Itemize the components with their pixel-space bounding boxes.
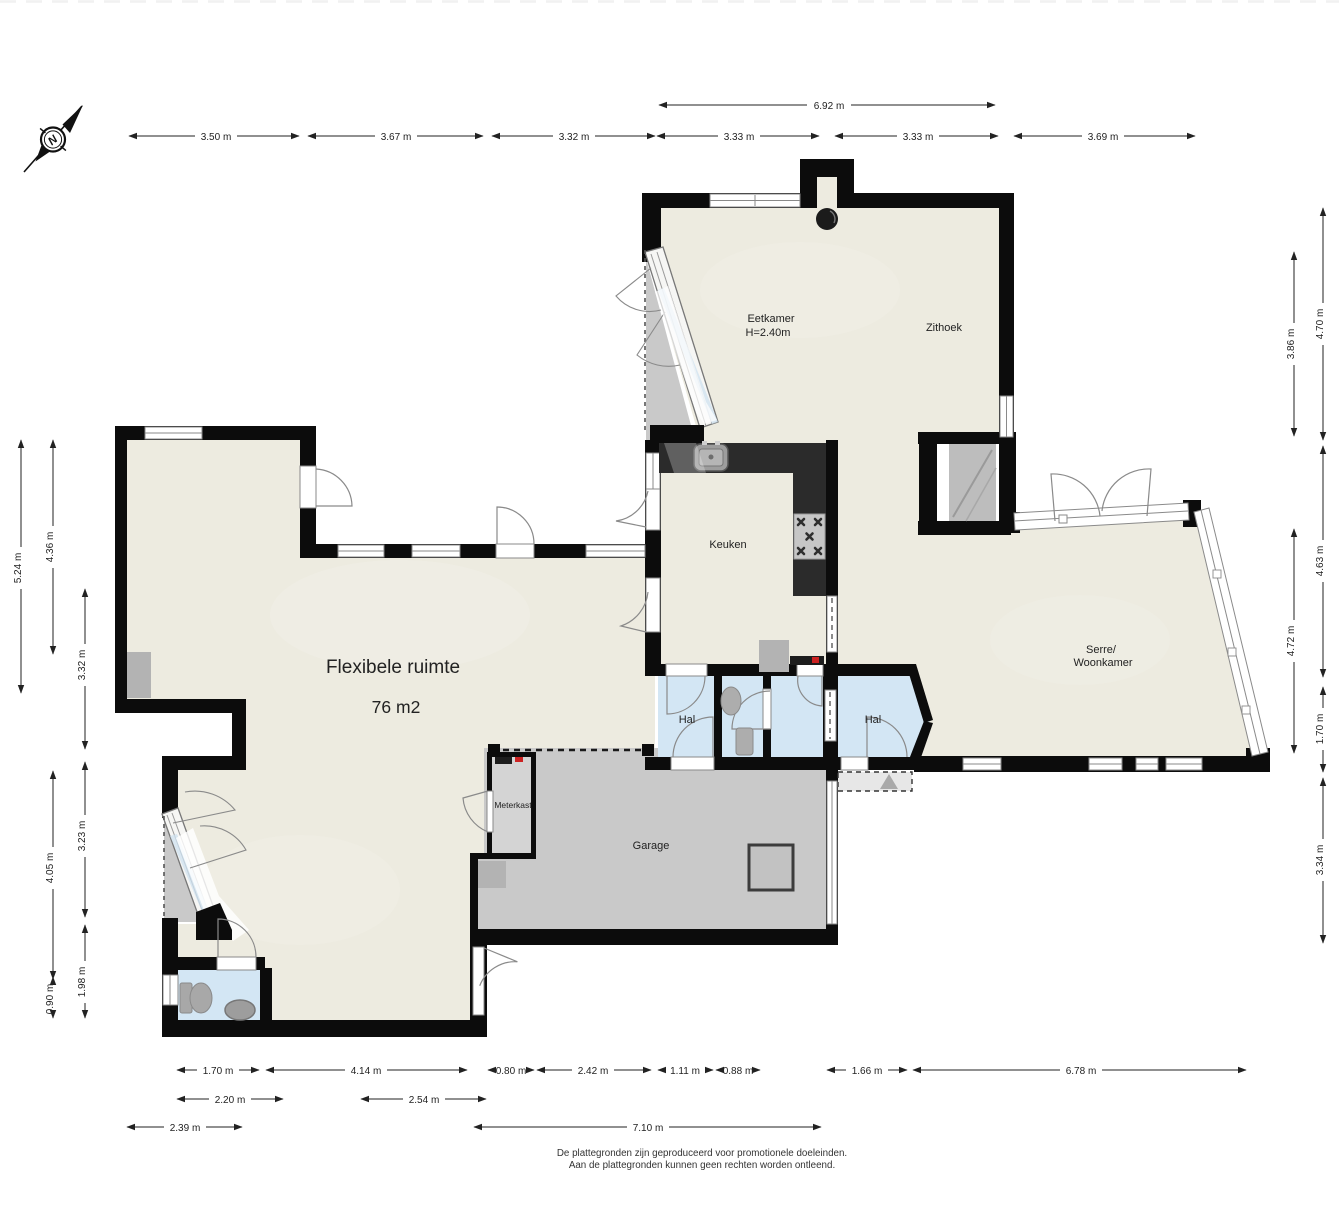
svg-text:4.70 m: 4.70 m — [1315, 309, 1326, 340]
svg-text:2.54 m: 2.54 m — [409, 1095, 440, 1106]
svg-text:4.05 m: 4.05 m — [45, 853, 56, 884]
svg-text:3.50 m: 3.50 m — [201, 132, 232, 143]
svg-text:3.69 m: 3.69 m — [1088, 132, 1119, 143]
svg-text:3.34 m: 3.34 m — [1315, 845, 1326, 876]
svg-text:2.39 m: 2.39 m — [170, 1123, 201, 1134]
svg-text:4.36 m: 4.36 m — [45, 532, 56, 563]
svg-text:3.23 m: 3.23 m — [77, 821, 88, 852]
svg-text:H=2.40m: H=2.40m — [746, 327, 791, 339]
svg-text:3.33 m: 3.33 m — [724, 132, 755, 143]
svg-text:Flexibele ruimte: Flexibele ruimte — [326, 657, 460, 678]
svg-text:76 m2: 76 m2 — [372, 697, 421, 717]
svg-text:6.78 m: 6.78 m — [1066, 1066, 1097, 1077]
svg-text:Woonkamer: Woonkamer — [1073, 657, 1132, 669]
svg-text:1.66 m: 1.66 m — [852, 1066, 883, 1077]
svg-text:1.11 m: 1.11 m — [670, 1066, 700, 1077]
svg-text:3.67 m: 3.67 m — [381, 132, 412, 143]
svg-text:5.24 m: 5.24 m — [13, 553, 24, 584]
svg-text:4.72 m: 4.72 m — [1286, 626, 1297, 657]
svg-text:0.88 m: 0.88 m — [723, 1066, 754, 1077]
svg-text:Hal: Hal — [865, 714, 882, 726]
svg-text:3.86 m: 3.86 m — [1286, 329, 1297, 360]
svg-text:Eetkamer: Eetkamer — [747, 313, 794, 325]
svg-text:Garage: Garage — [633, 840, 670, 852]
svg-text:Zithoek: Zithoek — [926, 322, 963, 334]
svg-text:6.92 m: 6.92 m — [814, 101, 845, 112]
svg-text:Keuken: Keuken — [709, 539, 746, 551]
svg-text:0.80 m: 0.80 m — [496, 1066, 527, 1077]
svg-text:3.32 m: 3.32 m — [559, 132, 590, 143]
svg-text:7.10 m: 7.10 m — [633, 1123, 664, 1134]
svg-text:Serre/: Serre/ — [1086, 644, 1117, 656]
svg-text:0.90 m: 0.90 m — [45, 984, 56, 1015]
svg-text:2.42 m: 2.42 m — [578, 1066, 609, 1077]
svg-text:3.33 m: 3.33 m — [903, 132, 934, 143]
svg-text:1.98 m: 1.98 m — [77, 967, 88, 998]
svg-text:Aan de plattegronden kunnen ge: Aan de plattegronden kunnen geen rechten… — [569, 1160, 835, 1171]
svg-text:4.14 m: 4.14 m — [351, 1066, 382, 1077]
svg-text:1.70 m: 1.70 m — [1315, 714, 1326, 745]
svg-text:2.20 m: 2.20 m — [215, 1095, 246, 1106]
svg-text:1.70 m: 1.70 m — [203, 1066, 234, 1077]
svg-text:3.32 m: 3.32 m — [77, 650, 88, 681]
svg-text:Meterkast: Meterkast — [494, 800, 532, 810]
svg-text:De plattegronden zijn geproduc: De plattegronden zijn geproduceerd voor … — [557, 1148, 847, 1159]
svg-text:4.63 m: 4.63 m — [1315, 546, 1326, 577]
svg-text:Hal: Hal — [679, 714, 696, 726]
